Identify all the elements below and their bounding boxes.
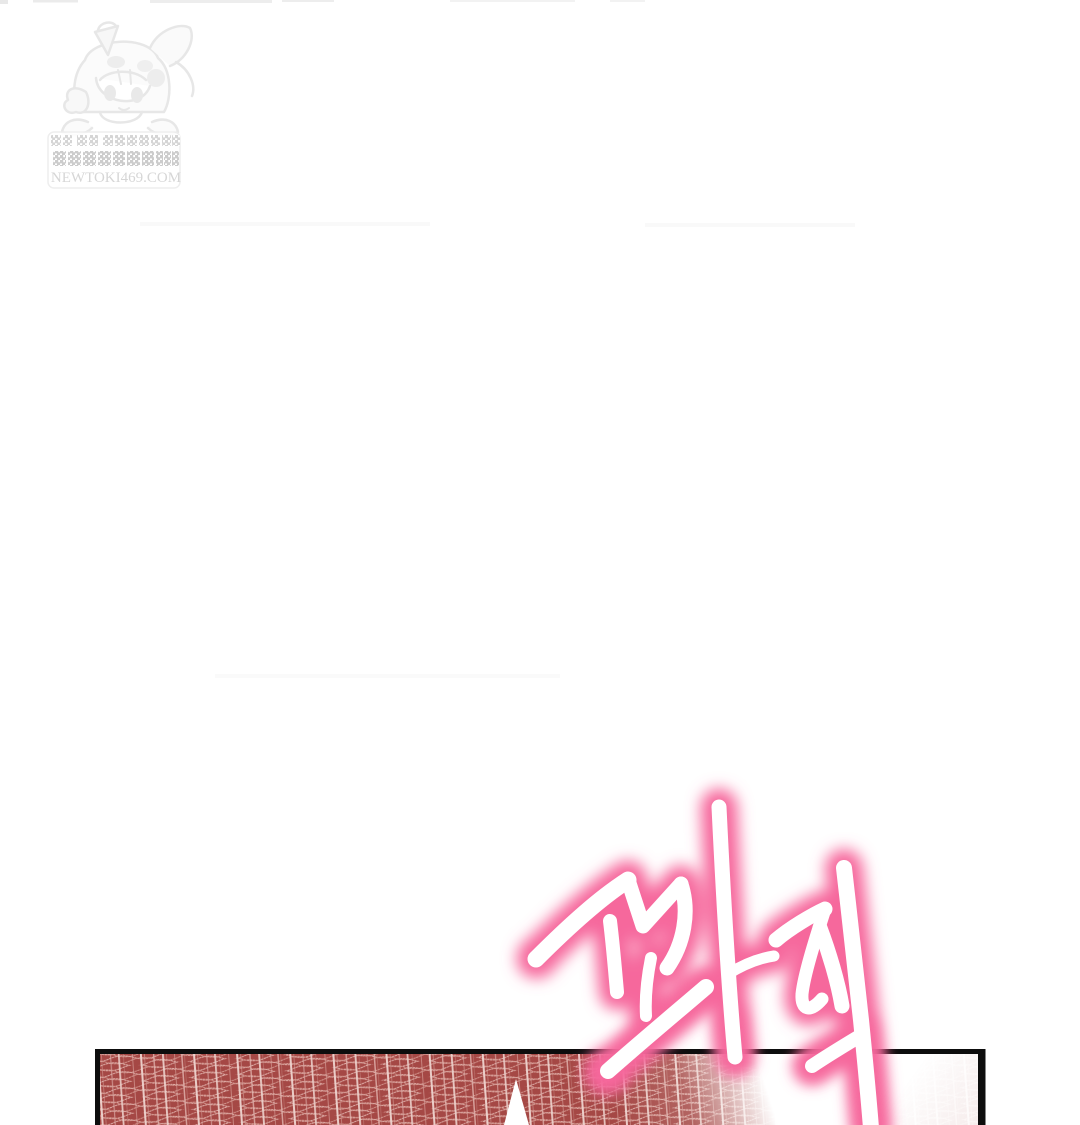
svg-text:NEWTOKI469.COM: NEWTOKI469.COM bbox=[51, 170, 181, 186]
